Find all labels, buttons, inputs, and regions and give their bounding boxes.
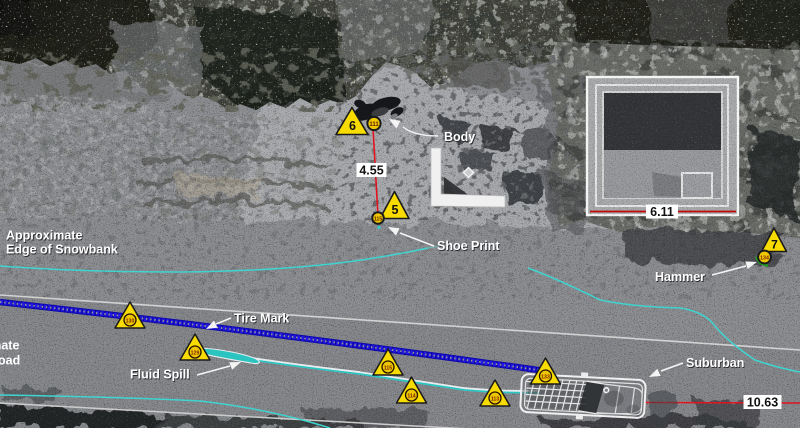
svg-text:Tire Mark: Tire Mark: [234, 312, 289, 326]
svg-text:115: 115: [374, 216, 382, 222]
svg-text:Suburban: Suburban: [686, 356, 744, 370]
svg-text:Approximate: Approximate: [0, 339, 19, 353]
svg-text:4.55: 4.55: [359, 164, 383, 178]
svg-text:Road: Road: [0, 354, 20, 368]
svg-text:130: 130: [126, 318, 135, 324]
svg-text:114: 114: [407, 393, 415, 399]
svg-text:7: 7: [771, 238, 778, 252]
svg-text:Approximate: Approximate: [6, 229, 82, 243]
svg-text:115: 115: [384, 365, 392, 371]
svg-text:Fluid Spill: Fluid Spill: [130, 368, 190, 382]
svg-text:133: 133: [541, 374, 550, 380]
svg-text:129: 129: [191, 350, 200, 356]
svg-text:111: 111: [369, 122, 379, 128]
svg-text:Body: Body: [444, 130, 475, 144]
svg-text:113: 113: [491, 396, 499, 402]
svg-text:5: 5: [392, 203, 399, 217]
svg-text:6: 6: [349, 119, 356, 133]
svg-text:134: 134: [760, 255, 769, 261]
svg-text:Shoe Print: Shoe Print: [437, 239, 500, 253]
svg-text:Hammer: Hammer: [655, 270, 705, 284]
svg-text:Edge of Snowbank: Edge of Snowbank: [6, 243, 118, 257]
svg-text:10.63: 10.63: [747, 396, 778, 410]
svg-text:6.11: 6.11: [650, 205, 674, 219]
